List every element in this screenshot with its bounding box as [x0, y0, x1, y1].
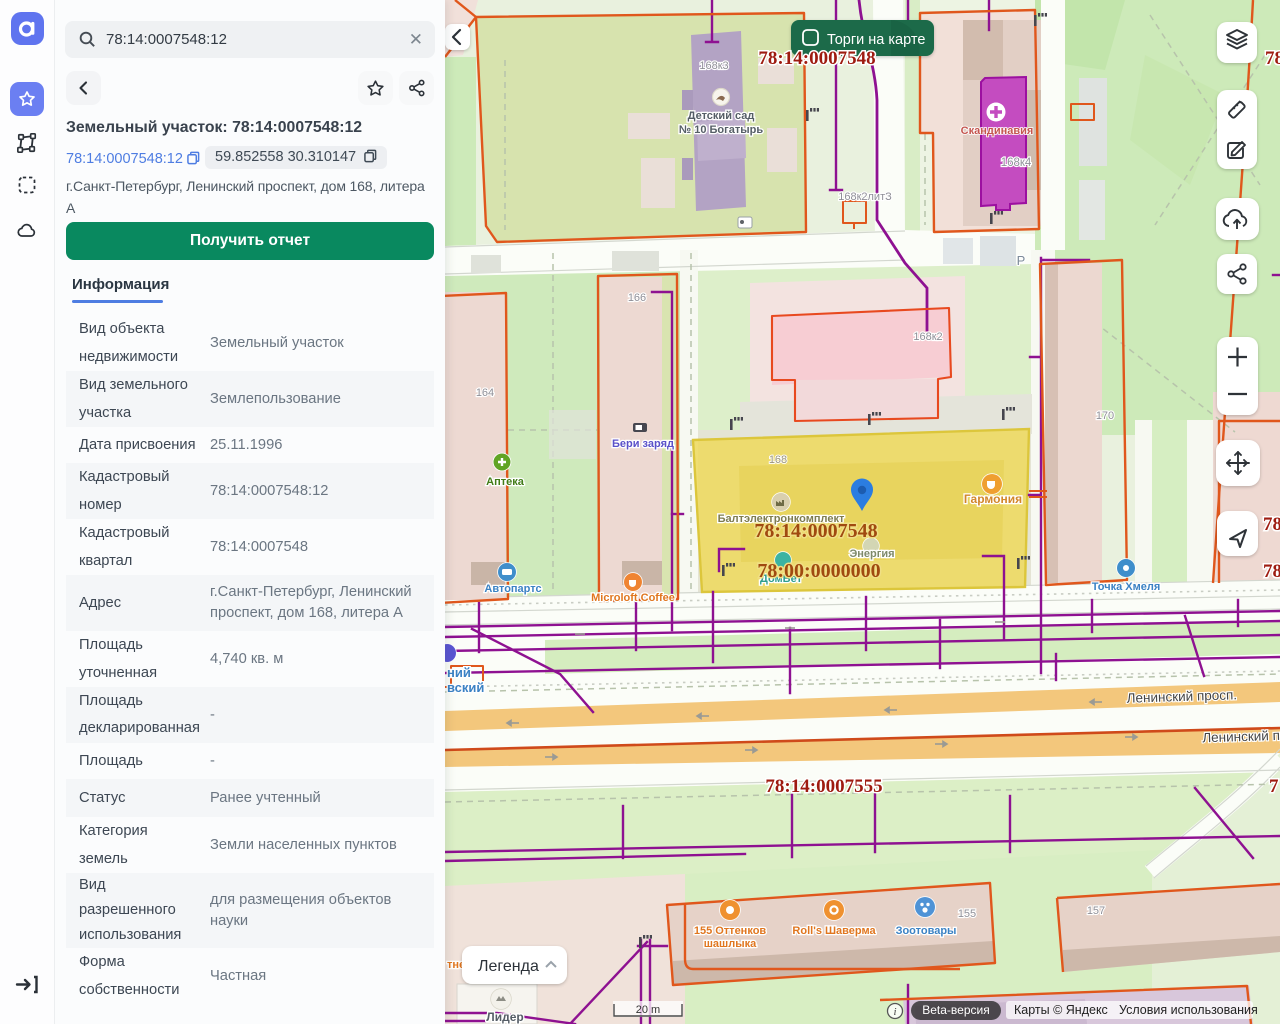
- svg-text:168к2литЗ: 168к2литЗ: [838, 191, 892, 203]
- svg-text:Microloft Coffee: Microloft Coffee: [591, 592, 675, 604]
- svg-text:Энергия: Энергия: [849, 548, 894, 560]
- svg-text:78:14:0007555: 78:14:0007555: [765, 776, 882, 797]
- svg-text:Аптека: Аптека: [486, 476, 525, 488]
- svg-text:7: 7: [1269, 776, 1279, 797]
- svg-text:155 Оттенков: 155 Оттенков: [694, 925, 767, 937]
- svg-text:78:: 78:: [1263, 514, 1280, 535]
- svg-text:Р: Р: [1017, 253, 1026, 268]
- svg-text:78:14:0007548: 78:14:0007548: [758, 48, 875, 69]
- svg-text:Скандинавия: Скандинавия: [961, 125, 1034, 137]
- svg-text:78: 78: [1263, 561, 1280, 582]
- svg-text:170: 170: [1096, 410, 1114, 422]
- svg-text:Детский сад: Детский сад: [688, 110, 755, 122]
- svg-text:Условия использования: Условия использования: [1119, 1003, 1258, 1017]
- svg-text:Гармония: Гармония: [964, 492, 1022, 506]
- svg-text:Легенда: Легенда: [478, 958, 539, 975]
- svg-text:78: 78: [1265, 48, 1280, 69]
- svg-text:168: 168: [769, 454, 787, 466]
- svg-text:Beta-версия: Beta-версия: [922, 1003, 989, 1017]
- svg-text:вский: вский: [447, 680, 484, 695]
- svg-text:168к2: 168к2: [913, 331, 942, 343]
- svg-text:Точка Хмеля: Точка Хмеля: [1092, 581, 1161, 593]
- svg-text:20 m: 20 m: [636, 1004, 660, 1016]
- svg-text:ний: ний: [447, 665, 471, 680]
- svg-text:78:14:0007548: 78:14:0007548: [754, 520, 877, 542]
- svg-text:№ 10 Богатырь: № 10 Богатырь: [679, 124, 763, 136]
- svg-text:155: 155: [958, 908, 976, 920]
- svg-text:164: 164: [476, 387, 494, 399]
- svg-text:шашлыка: шашлыка: [704, 938, 757, 950]
- svg-text:Лидер: Лидер: [486, 1010, 523, 1024]
- svg-text:Торги на карте: Торги на карте: [827, 32, 925, 48]
- svg-text:168к3: 168к3: [699, 60, 728, 72]
- svg-text:168к4: 168к4: [1001, 157, 1032, 169]
- svg-text:i: i: [893, 1006, 896, 1018]
- svg-text:Автопартс: Автопартс: [484, 583, 541, 595]
- svg-text:78:00:0000000: 78:00:0000000: [757, 560, 880, 582]
- svg-text:157: 157: [1087, 905, 1105, 917]
- svg-text:Бери заряд: Бери заряд: [612, 438, 674, 450]
- svg-text:Ленинский пр: Ленинский пр: [1202, 728, 1280, 746]
- svg-text:Roll's Шаверма: Roll's Шаверма: [792, 925, 876, 937]
- svg-text:Зоотовары: Зоотовары: [896, 925, 957, 937]
- svg-text:166: 166: [628, 292, 646, 304]
- svg-text:Карты © Яндекс: Карты © Яндекс: [1014, 1003, 1108, 1017]
